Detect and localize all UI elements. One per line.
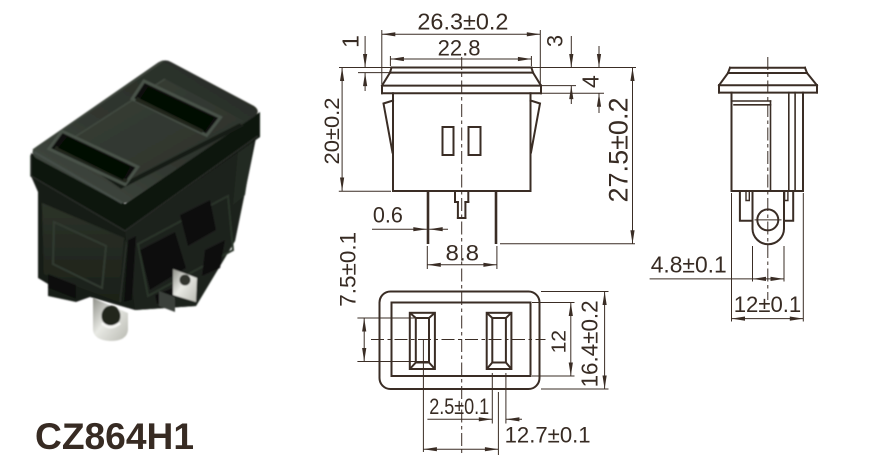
svg-text:12±0.1: 12±0.1 bbox=[734, 292, 802, 317]
svg-text:22.8: 22.8 bbox=[438, 35, 481, 60]
svg-text:0.6: 0.6 bbox=[373, 203, 403, 228]
svg-text:1: 1 bbox=[338, 35, 364, 48]
svg-text:3: 3 bbox=[543, 35, 568, 47]
svg-text:12: 12 bbox=[548, 330, 571, 354]
svg-text:4.8±0.1: 4.8±0.1 bbox=[651, 251, 727, 277]
svg-text:4: 4 bbox=[578, 75, 604, 88]
svg-text:27.5±0.2: 27.5±0.2 bbox=[604, 98, 634, 203]
svg-text:26.3±0.2: 26.3±0.2 bbox=[417, 9, 508, 35]
svg-text:12.7±0.1: 12.7±0.1 bbox=[505, 423, 591, 448]
svg-text:2.5±0.1: 2.5±0.1 bbox=[429, 394, 489, 419]
svg-text:8.8: 8.8 bbox=[446, 241, 480, 266]
svg-text:CZ864H1: CZ864H1 bbox=[35, 415, 194, 457]
svg-text:16.4±0.2: 16.4±0.2 bbox=[577, 300, 603, 387]
svg-text:20±0.2: 20±0.2 bbox=[321, 98, 344, 165]
svg-text:7.5±0.1: 7.5±0.1 bbox=[336, 232, 361, 307]
